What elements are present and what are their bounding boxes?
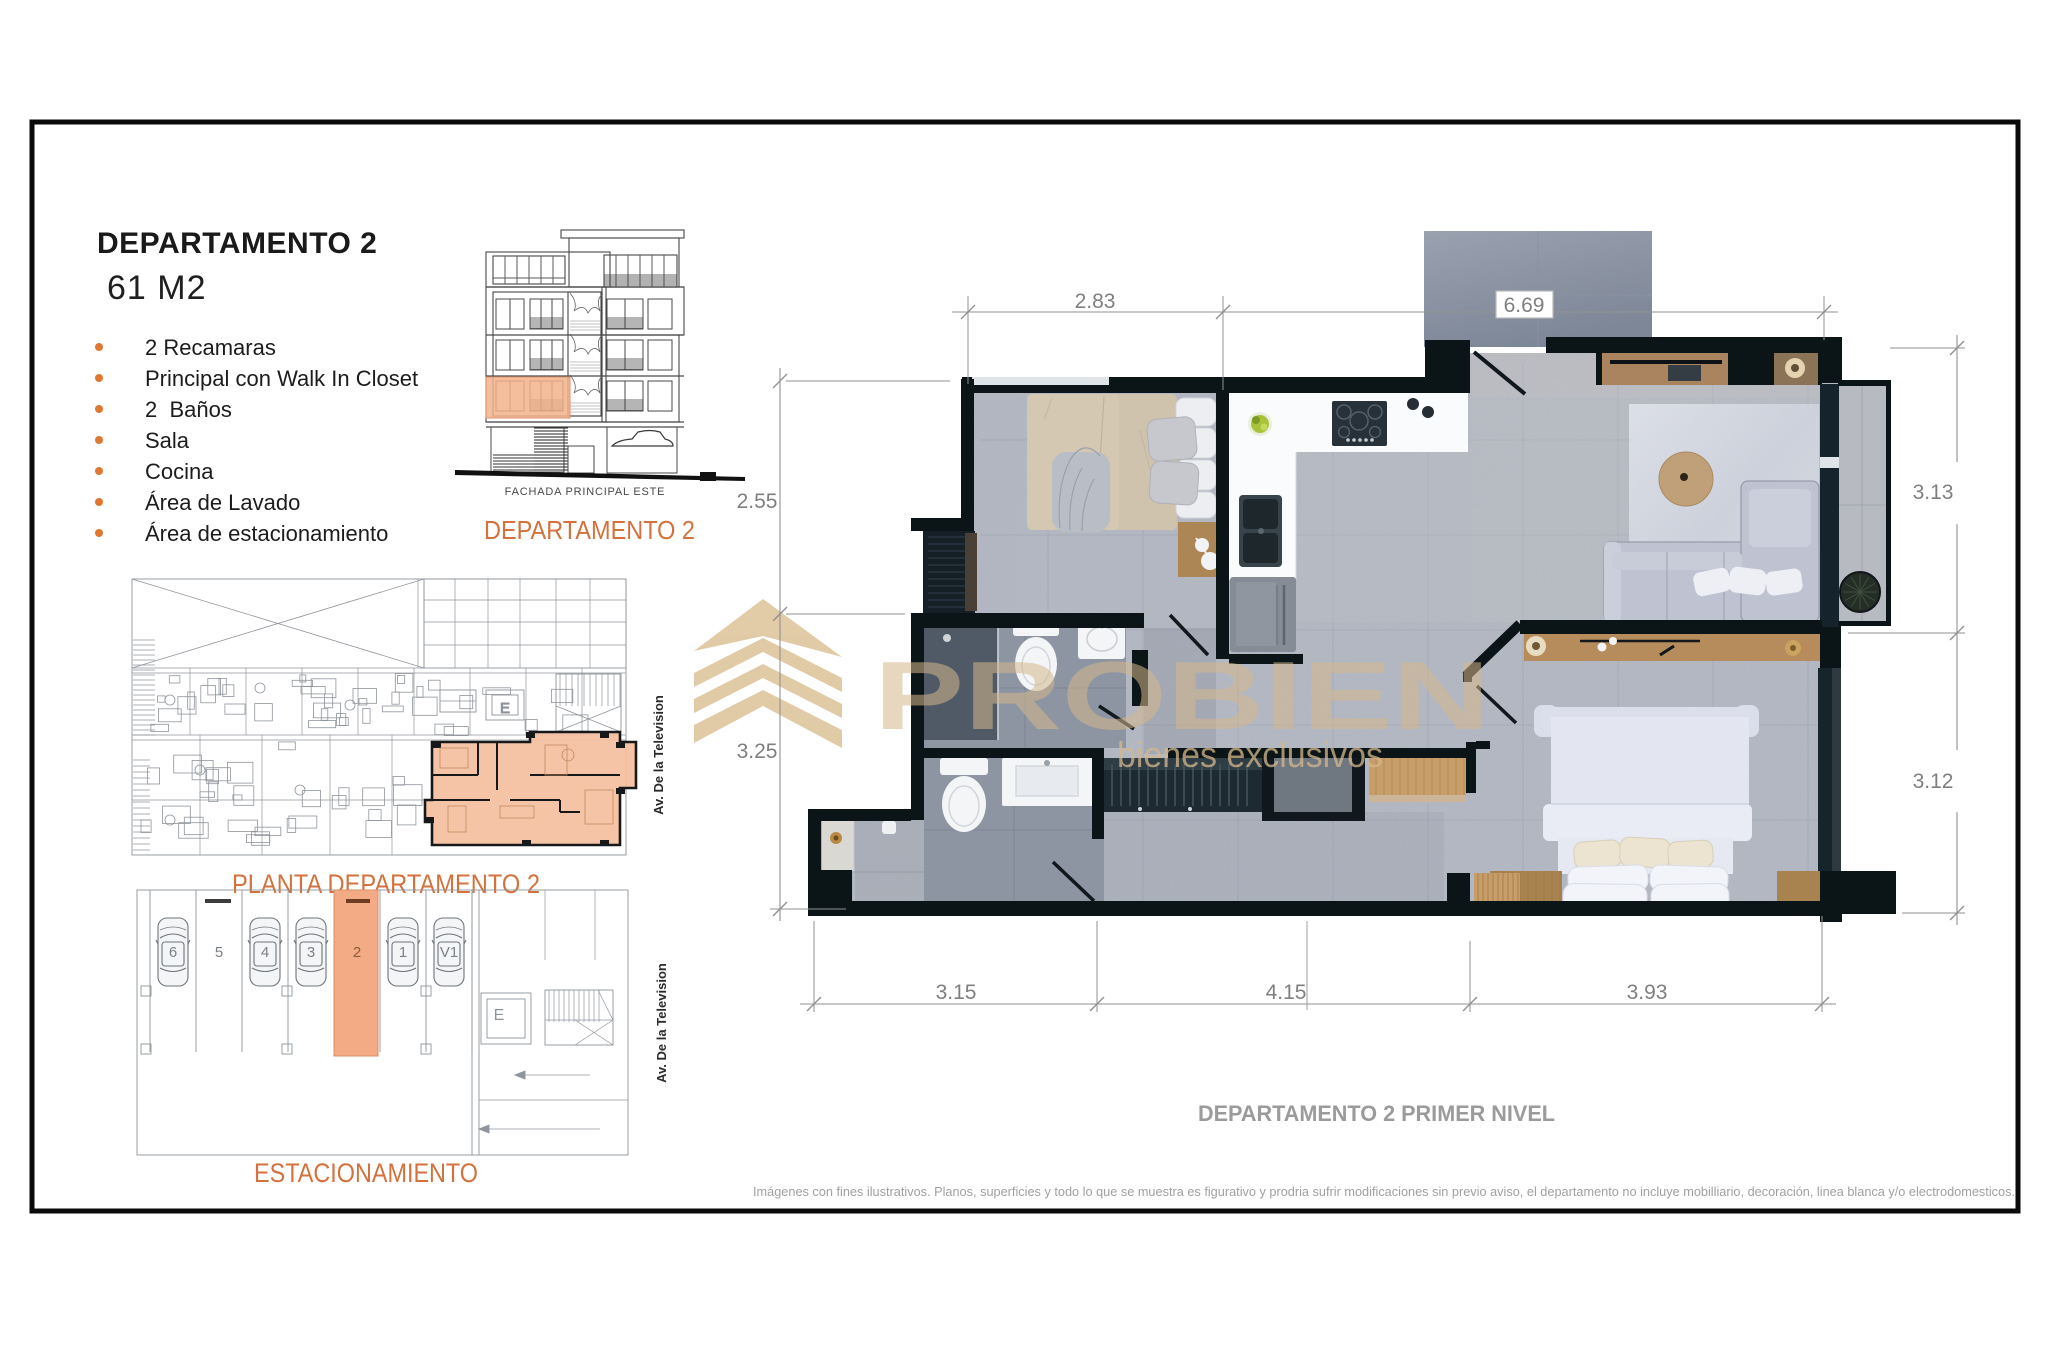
svg-text:2.55: 2.55 [737,490,778,513]
svg-text:ESTACIONAMIENTO: ESTACIONAMIENTO [254,1158,478,1188]
svg-text:3.13: 3.13 [1913,481,1954,504]
svg-text:Av. De la Television: Av. De la Television [654,963,669,1083]
svg-text:6: 6 [169,944,177,961]
svg-text:DEPARTAMENTO 2: DEPARTAMENTO 2 [97,227,377,260]
svg-text:2.83: 2.83 [1075,290,1116,313]
svg-text:2 Baños: 2 Baños [145,397,232,422]
svg-text:3.93: 3.93 [1627,981,1668,1004]
svg-text:bienes exclusivos: bienes exclusivos [1117,734,1383,775]
svg-text:Cocina: Cocina [145,459,214,484]
svg-text:Imágenes con fines ilustrativo: Imágenes con fines ilustrativos. Planos,… [753,1184,2015,1199]
svg-text:3.12: 3.12 [1913,770,1954,793]
svg-text:Área de Lavado: Área de Lavado [145,490,300,515]
svg-text:3.25: 3.25 [737,740,778,763]
svg-text:PLANTA DEPARTAMENTO 2: PLANTA DEPARTAMENTO 2 [232,869,540,899]
svg-text:4: 4 [261,944,269,961]
svg-text:2: 2 [353,944,361,961]
svg-text:2 Recamaras: 2 Recamaras [145,335,276,360]
svg-text:3: 3 [307,944,315,961]
svg-text:Principal con Walk In Closet: Principal con Walk In Closet [145,366,418,391]
svg-text:DEPARTAMENTO 2 PRIMER NIVEL: DEPARTAMENTO 2 PRIMER NIVEL [1198,1101,1555,1126]
svg-text:4.15: 4.15 [1266,981,1307,1004]
svg-text:5: 5 [215,944,223,961]
svg-text:6.69: 6.69 [1504,294,1545,317]
svg-text:61 M2: 61 M2 [107,269,207,307]
svg-text:Área de estacionamiento: Área de estacionamiento [145,521,388,546]
svg-text:DEPARTAMENTO 2: DEPARTAMENTO 2 [484,515,695,545]
svg-text:E: E [494,1007,505,1024]
svg-text:Sala: Sala [145,428,190,453]
svg-text:E: E [500,700,510,717]
svg-text:Av. De la Television: Av. De la Television [651,695,666,815]
svg-text:V1: V1 [440,944,458,961]
svg-text:3.15: 3.15 [936,981,977,1004]
svg-text:1: 1 [399,944,407,961]
svg-text:FACHADA PRINCIPAL ESTE: FACHADA PRINCIPAL ESTE [505,486,666,498]
